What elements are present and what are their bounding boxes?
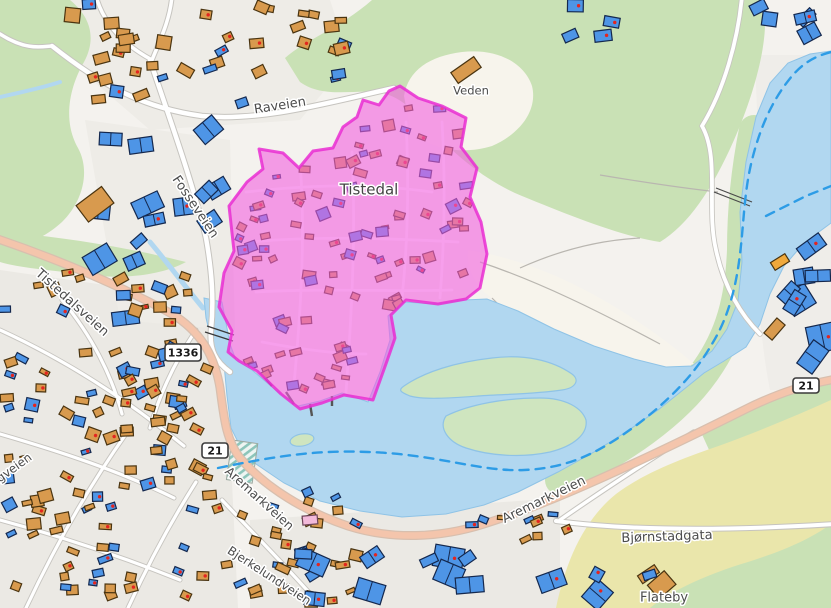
building: [121, 425, 133, 433]
building: [335, 17, 346, 23]
svg-text:21: 21: [207, 445, 222, 458]
place-label-tistedal: Tistedal: [339, 181, 399, 199]
building: [89, 579, 98, 586]
building: [165, 477, 174, 484]
building: [177, 396, 187, 403]
building: [281, 539, 291, 549]
place-label-veden: Veden: [453, 84, 489, 98]
building: [147, 61, 158, 70]
building: [603, 16, 620, 29]
building: [327, 597, 337, 604]
map-viewport[interactable]: Tistedal Veden Flateby Raveien Fosseveie…: [0, 0, 831, 608]
building: [109, 85, 124, 98]
building: [99, 132, 122, 146]
building: [72, 415, 86, 427]
building: [151, 417, 166, 427]
building: [24, 398, 39, 412]
map-canvas[interactable]: Tistedal Veden Flateby Raveien Fosseveie…: [0, 0, 831, 608]
building: [128, 136, 154, 154]
building: [60, 572, 69, 581]
place-label-flateby: Flateby: [640, 591, 688, 606]
building: [91, 94, 105, 104]
building: [121, 399, 131, 407]
building: [298, 10, 309, 17]
building: [36, 384, 46, 392]
building: [165, 458, 177, 470]
building: [0, 394, 14, 403]
building: [150, 446, 162, 454]
building: [197, 571, 209, 580]
building: [295, 549, 312, 559]
building: [594, 29, 613, 42]
building: [761, 11, 777, 27]
building: [171, 306, 181, 313]
building: [156, 35, 172, 51]
building: [302, 515, 318, 525]
building: [99, 523, 111, 529]
building: [164, 319, 175, 327]
building: [130, 67, 141, 77]
building: [62, 269, 74, 276]
building: [116, 290, 130, 300]
building: [249, 38, 264, 49]
building: [533, 532, 542, 540]
building: [79, 348, 92, 357]
building: [125, 572, 136, 583]
building: [92, 568, 104, 578]
building: [335, 561, 350, 570]
building: [221, 560, 233, 568]
building: [183, 289, 192, 296]
building: [154, 302, 167, 313]
building: [455, 576, 484, 595]
building: [119, 482, 130, 489]
building: [73, 488, 85, 498]
building: [567, 0, 583, 12]
building: [24, 418, 33, 423]
building: [466, 522, 478, 528]
building: [92, 492, 102, 501]
building: [167, 423, 179, 433]
building: [331, 69, 345, 80]
building: [82, 0, 96, 10]
building: [333, 41, 350, 56]
road-badge-21-west: 21: [202, 443, 228, 458]
building: [132, 284, 144, 292]
building: [64, 7, 81, 23]
building: [60, 584, 71, 591]
building: [37, 488, 53, 503]
svg-text:1336: 1336: [168, 347, 199, 360]
building: [26, 518, 41, 531]
building: [125, 466, 136, 474]
building: [270, 531, 281, 539]
road-label-bjornstadgata: Bjørnstadgata: [621, 528, 713, 546]
svg-text:21: 21: [798, 380, 813, 393]
building: [109, 543, 120, 551]
building: [805, 270, 830, 282]
building: [179, 381, 189, 388]
road-badge-21-east: 21: [793, 378, 819, 393]
building: [202, 490, 216, 500]
building: [105, 584, 116, 593]
building: [75, 396, 89, 404]
building: [118, 33, 134, 46]
road-badge-1336: 1336: [165, 344, 201, 361]
building: [55, 512, 71, 525]
building: [200, 9, 212, 19]
building: [548, 512, 558, 517]
building: [333, 506, 343, 515]
building: [97, 543, 109, 551]
building: [0, 306, 11, 312]
